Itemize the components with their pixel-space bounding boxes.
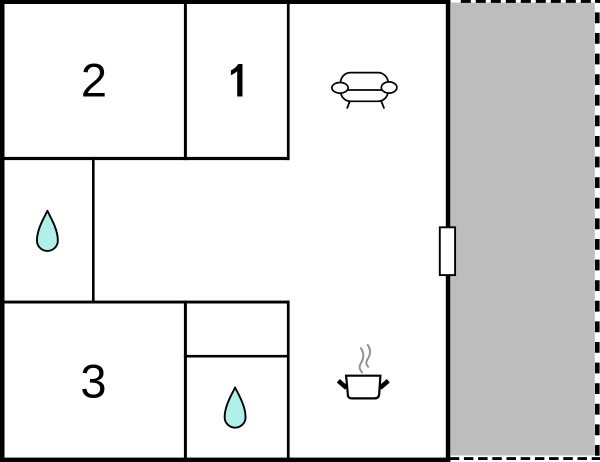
svg-text:3: 3: [80, 354, 106, 407]
svg-text:2: 2: [81, 54, 107, 107]
